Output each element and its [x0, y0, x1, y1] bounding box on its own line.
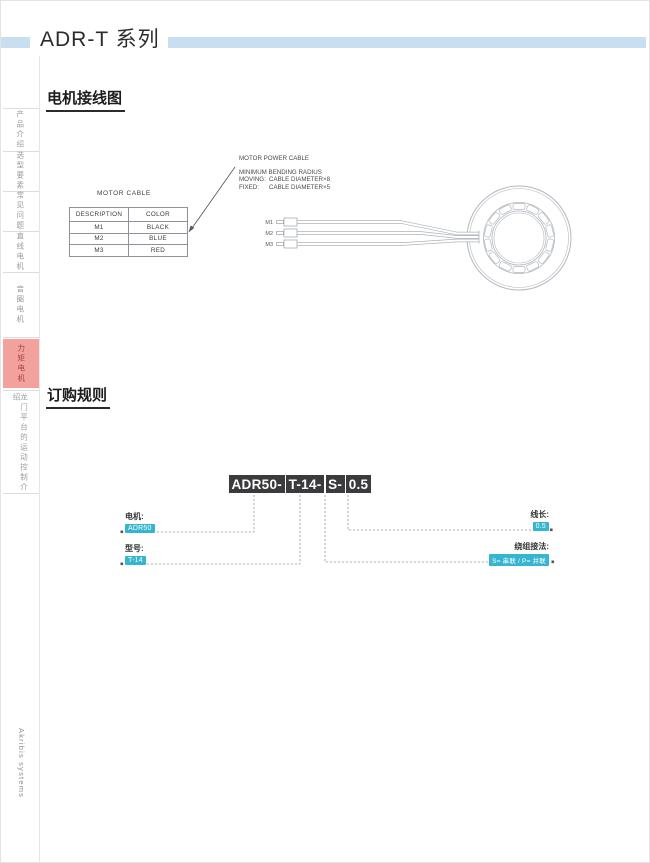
note-fixed: FIXED:CABLE DIAMETER×5: [239, 184, 330, 191]
page-title: ADR-T 系列: [40, 23, 160, 53]
brand-vertical-text: Akribis systems: [17, 728, 26, 798]
callout-value-highlight: 0.5: [533, 522, 549, 531]
callout-value-highlight: S= 串联 / P= 并联: [489, 554, 549, 566]
section-heading-wiring: 电机接线图: [46, 87, 125, 112]
cell-color: BLUE: [129, 233, 188, 245]
callout-value-highlight: T-14: [125, 556, 146, 565]
cell-color: RED: [129, 245, 188, 257]
motor-cables: [297, 222, 479, 244]
sidebar-item-label: 直线电机: [16, 232, 24, 272]
header-accent-bar-left: [1, 37, 30, 48]
sidebar-item-torque-motor[interactable]: 力矩电机: [3, 339, 39, 388]
callout-label: 型号:: [125, 543, 146, 554]
cell-desc: M3: [70, 245, 129, 257]
callout-motor: 电机: ADR50: [125, 511, 155, 533]
callout-label: 线长:: [530, 509, 549, 520]
callout-label: 绕组接法:: [514, 541, 549, 552]
catalog-page: ADR-T 系列 产品介绍 选型要素 常见问题 直线电机 音圈电机 力矩电机 龙…: [0, 0, 650, 863]
callout-label: 电机:: [125, 511, 155, 522]
callout-winding-connection: 绕组接法: S= 串联 / P= 并联: [409, 541, 549, 566]
col-description: DESCRIPTION: [70, 208, 129, 222]
sidebar-item-faq[interactable]: 常见问题: [1, 191, 39, 231]
motor-cable-table-title: MOTOR CABLE: [97, 190, 151, 197]
cable-labels: M1 M2 M3: [265, 220, 273, 248]
sidebar-item-label: 力矩电机: [17, 344, 25, 384]
sidebar-item-label: 龙门平台的运动控制介绍: [13, 393, 28, 493]
part-number: ADR50- T-14- S- 0.5: [229, 475, 371, 493]
table-row: M3 RED: [70, 245, 188, 257]
cell-desc: M1: [70, 222, 129, 234]
motor-cable-table: DESCRIPTION COLOR M1 BLACK M2 BLUE M3 RE…: [69, 207, 188, 257]
sidebar-item-label: 音圈电机: [16, 285, 24, 325]
sidebar-divider-line: [39, 56, 40, 863]
torque-motor-drawing: [467, 186, 571, 290]
cell-desc: M2: [70, 233, 129, 245]
sidebar-item-label: 常见问题: [16, 191, 24, 231]
sidebar-item-gantry-motion-control[interactable]: 龙门平台的运动控制介绍: [1, 393, 39, 493]
part-number-segment-motor: ADR50-: [229, 475, 285, 493]
note-moving: MOVING:CABLE DIAMETER×8: [239, 176, 330, 183]
part-number-segment-length: 0.5: [346, 475, 371, 493]
sidebar-item-voice-coil-motor[interactable]: 音圈电机: [1, 272, 39, 337]
part-number-segment-model: T-14-: [286, 475, 324, 493]
table-row: M2 BLUE: [70, 233, 188, 245]
cell-color: BLACK: [129, 222, 188, 234]
sidebar-separator: [3, 390, 39, 391]
table-row: M1 BLACK: [70, 222, 188, 234]
sidebar-separator: [3, 493, 39, 494]
cable-label-m1: M1: [265, 220, 273, 226]
sidebar-item-selection-factors[interactable]: 选型要素: [1, 151, 39, 191]
sidebar-item-product-intro[interactable]: 产品介绍: [1, 108, 39, 151]
sidebar-item-label: 选型要素: [16, 151, 24, 191]
cable-connectors: [277, 218, 298, 248]
sidebar-item-linear-motor[interactable]: 直线电机: [1, 231, 39, 272]
power-cable-notes: MOTOR POWER CABLE MINIMUM BENDING RADIUS…: [239, 155, 330, 191]
note-power-cable: MOTOR POWER CABLE: [239, 155, 330, 162]
callout-value-highlight: ADR50: [125, 524, 155, 533]
note-bending-radius: MINIMUM BENDING RADIUS: [239, 169, 330, 176]
sidebar-separator: [3, 337, 39, 338]
callout-model: 型号: T-14: [125, 543, 146, 565]
stator-segments: [484, 204, 554, 273]
cable-label-m3: M3: [265, 242, 273, 248]
callout-cable-length: 线长: 0.5: [449, 509, 549, 531]
sidebar-item-label: 产品介绍: [16, 110, 24, 150]
header-accent-bar-right: [168, 37, 646, 48]
annotation-arrow: [189, 167, 236, 233]
cable-label-m2: M2: [265, 231, 273, 237]
table-header-row: DESCRIPTION COLOR: [70, 208, 188, 222]
section-heading-ordering: 订购规则: [46, 384, 110, 409]
part-number-segment-winding: S-: [326, 475, 345, 493]
col-color: COLOR: [129, 208, 188, 222]
